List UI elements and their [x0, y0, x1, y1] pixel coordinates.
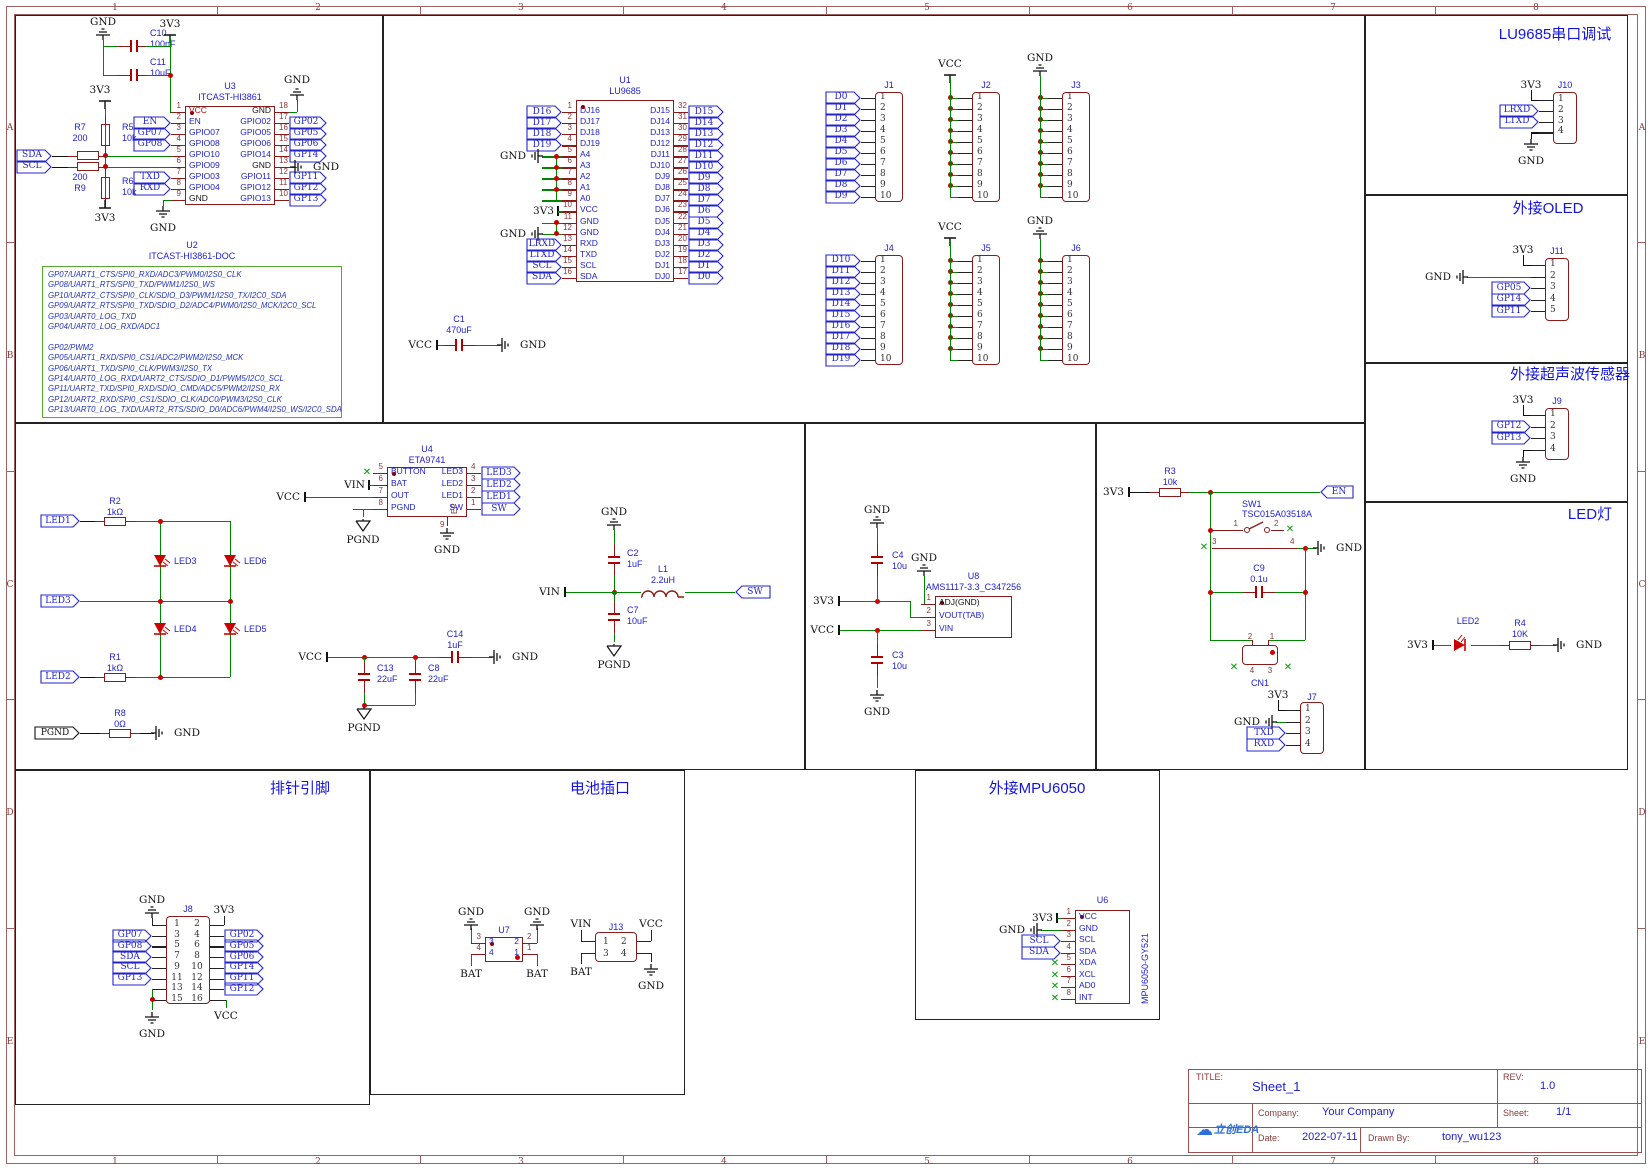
capacitor[interactable] [130, 40, 132, 52]
conn-ref: J2 [981, 80, 991, 90]
part-ref: R5 [122, 122, 134, 132]
pin-number: 1 [1550, 259, 1556, 269]
wire [210, 1000, 224, 1001]
capacitor [457, 651, 459, 663]
pin-name: GND [252, 106, 271, 116]
power-label: 3V3 [1513, 394, 1534, 406]
ic-value: ETA9741 [409, 455, 446, 465]
wire [958, 197, 972, 198]
pin-name: A2 [580, 172, 590, 182]
wire [1531, 415, 1545, 416]
pin-number: 8 [880, 332, 886, 342]
net-label: GP14 [1497, 294, 1522, 304]
component-cn1[interactable] [1242, 645, 1278, 665]
pin-name: DJ12 [650, 139, 670, 149]
section-title-lu9685-debug: LU9685串口调试 [1499, 26, 1612, 43]
wire [471, 954, 472, 966]
pin-name: GPIO07 [189, 128, 220, 138]
wire [958, 120, 972, 121]
doc-line: GP08/UART1_RTS/SPI0_TXD/PWM1/I2S0_WS [48, 281, 215, 289]
wire [861, 109, 875, 110]
pin-number: 3 [977, 114, 983, 124]
pin-number: 2 [1305, 716, 1311, 726]
part-ref: C3 [892, 650, 904, 660]
led[interactable] [222, 620, 238, 640]
pin-number: 3 [174, 930, 180, 940]
wire [1434, 645, 1451, 646]
pin-number: 20 [678, 234, 687, 243]
capacitor[interactable] [871, 656, 883, 658]
wire [95, 677, 104, 678]
easyeda-logo-icon: ☁ [1196, 1120, 1213, 1140]
pin-name: GPIO12 [240, 183, 271, 193]
pin-number: 3 [603, 949, 609, 959]
component-j10[interactable] [1553, 92, 1577, 144]
part-value: 1uF [447, 640, 463, 650]
resistor[interactable] [77, 151, 99, 160]
power-label: 3V3 [1407, 639, 1428, 651]
led[interactable] [152, 552, 168, 572]
resistor[interactable] [101, 177, 110, 199]
wire [537, 954, 538, 966]
pin-name: DJ9 [655, 172, 670, 182]
section-title-mpu6050: 外接MPU6050 [989, 780, 1086, 797]
pin-number: 4 [1558, 126, 1564, 136]
frame-col-label: 5 [924, 3, 930, 13]
pin-name: DJ19 [580, 139, 600, 149]
component-j11[interactable] [1545, 258, 1569, 321]
power-label: VCC [214, 1010, 238, 1022]
capacitor[interactable] [409, 673, 421, 675]
pin-name: DJ3 [655, 239, 670, 249]
capacitor [409, 679, 421, 681]
pin-number: 6 [568, 156, 572, 165]
wire [1048, 338, 1062, 339]
junction-dot [158, 599, 163, 604]
gnd-symbol [489, 647, 503, 667]
net-flag: GP12 [224, 982, 264, 996]
gnd-label: GND [638, 980, 664, 992]
conn-ref: J8 [183, 904, 193, 914]
pin-number: 7 [977, 321, 983, 331]
wire [210, 957, 224, 958]
wire [1276, 722, 1286, 723]
gnd-symbol [867, 690, 887, 704]
conn-ref: J9 [1552, 396, 1562, 406]
part-ref: L1 [658, 564, 668, 574]
wire [950, 360, 958, 361]
bat-label: BAT [526, 968, 548, 980]
wire [210, 946, 224, 947]
wire [1286, 710, 1300, 711]
gnd-label: GND [174, 727, 200, 739]
wire [1531, 277, 1545, 278]
wire [6, 699, 14, 700]
wire [99, 167, 108, 168]
pin-number: 2 [927, 606, 931, 615]
wire [471, 928, 472, 943]
pin-number: 7 [880, 321, 886, 331]
pin-number: 6 [194, 940, 200, 950]
wire [297, 100, 298, 112]
section-title-ultrasonic: 外接超声波传感器 [1510, 366, 1630, 383]
pin-number: 1 [177, 101, 181, 110]
pin-number: 3 [177, 123, 181, 132]
part-value: 10uF [627, 616, 648, 626]
wire [152, 918, 153, 925]
part-ref: R7 [74, 122, 86, 132]
net-flag: D19 [825, 353, 861, 367]
pin-number: 15 [171, 994, 182, 1004]
pin-number: 1 [568, 101, 572, 110]
wire [1638, 699, 1646, 700]
wire [131, 733, 140, 734]
wire [958, 109, 972, 110]
pin-number: 1 [880, 92, 886, 102]
part-value: 0Ω [114, 719, 126, 729]
pin-number: 24 [678, 189, 687, 198]
pin-number: 4 [977, 288, 983, 298]
wire [861, 338, 875, 339]
frame-col-label: 6 [1127, 3, 1133, 13]
wire [459, 657, 471, 658]
pin-number: 23 [678, 200, 687, 209]
wire [420, 1156, 421, 1164]
power-label: VCC [810, 624, 834, 636]
capacitor[interactable] [358, 673, 370, 675]
conn-ref: J6 [1071, 243, 1081, 253]
resistor[interactable] [104, 673, 126, 682]
pin-number: 1 [1550, 409, 1556, 419]
conn-ref: SW1 [1242, 499, 1262, 509]
wire [420, 6, 421, 14]
wire [637, 953, 651, 954]
resistor[interactable] [1159, 488, 1181, 497]
sheet-title: Sheet_1 [1252, 1080, 1300, 1095]
part-value: R9 [74, 183, 86, 193]
pin-number: 13 [563, 234, 572, 243]
pin-name: DJ17 [580, 117, 600, 127]
gnd-label: GND [139, 894, 165, 906]
resistor[interactable] [1509, 641, 1531, 650]
gnd-symbol [142, 1012, 162, 1026]
gnd-label: GND [1336, 542, 1362, 554]
section-box-enable-switch [1096, 423, 1365, 770]
junction-dot [515, 955, 520, 960]
frame-row-label: D [6, 808, 13, 818]
drawn-by-value: tony_wu123 [1442, 1131, 1501, 1144]
wire [958, 360, 972, 361]
net-flag: RXD [1246, 738, 1286, 752]
part-value: 10k [1163, 477, 1178, 487]
power-label: VCC [298, 651, 322, 663]
frame-col-label: 2 [315, 1157, 321, 1167]
wire [861, 120, 875, 121]
wire [1048, 186, 1062, 187]
conn-ref: J5 [981, 243, 991, 253]
wire [1061, 999, 1075, 1000]
no-connect-x-icon: ✕ [1286, 524, 1294, 536]
net-label: D9 [835, 191, 848, 201]
doc-line: GP04/UART0_LOG_RXD/ADC1 [48, 323, 160, 331]
wire [542, 167, 562, 168]
pin-number: 1 [977, 255, 983, 265]
inductor[interactable] [641, 585, 685, 593]
pin-number: 1 [1270, 632, 1274, 641]
pin-number: 8 [379, 498, 383, 507]
gnd-symbol [1521, 139, 1541, 153]
pin-number: 2 [1067, 103, 1073, 113]
pin-number: 5 [977, 136, 983, 146]
pin-name: BAT [391, 479, 407, 489]
pin-number: 3 [1550, 282, 1556, 292]
gnd-symbol [1030, 62, 1050, 76]
pin-number: 14 [191, 983, 202, 993]
pin-number: 1 [1234, 519, 1238, 528]
wire [861, 142, 875, 143]
pin-name: EN [189, 117, 201, 127]
pin-number: 3 [1212, 537, 1216, 546]
frame-col-label: 1 [112, 3, 118, 13]
frame-col-label: 2 [315, 3, 321, 13]
pin-number: 5 [379, 462, 383, 471]
led-label: LED5 [244, 624, 267, 634]
pin-number: 15 [279, 134, 288, 143]
net-flag: LTXD [1499, 115, 1539, 129]
junction-dot [554, 165, 559, 170]
ic-value: LU9685 [609, 86, 641, 96]
pin-number: 1 [1305, 704, 1311, 714]
pin-number: 13 [279, 156, 288, 165]
component-j13[interactable] [595, 932, 637, 962]
pin-name: SDA [580, 272, 597, 282]
capacitor [358, 679, 370, 681]
wire [1286, 733, 1300, 734]
net-label: LED1 [486, 492, 512, 502]
wire [118, 75, 130, 76]
wire [1523, 450, 1524, 457]
wire [958, 316, 972, 317]
wire [542, 178, 562, 179]
net-label: GP12 [230, 984, 255, 994]
wire [1539, 111, 1553, 112]
net-label: GP13 [118, 973, 143, 983]
wire [1531, 427, 1545, 428]
capacitor [461, 339, 463, 351]
wire [210, 925, 224, 926]
wire [1029, 6, 1030, 14]
pin-number: 27 [678, 156, 687, 165]
net-flag: SCL [16, 160, 52, 174]
wire [6, 928, 14, 929]
net-flag: EN [1320, 485, 1354, 499]
wire [463, 345, 475, 346]
net-label: RXD [1254, 739, 1274, 749]
gnd-label: GND [1518, 155, 1544, 167]
net-label: SDA [1029, 947, 1049, 957]
wire [542, 156, 562, 157]
junction-dot [150, 997, 155, 1002]
pin-name: GND [580, 217, 599, 227]
pin-number: 4 [477, 943, 481, 952]
wire [353, 497, 373, 498]
wire [1048, 197, 1062, 198]
wire [1029, 1156, 1030, 1164]
pin-number: 3 [471, 474, 475, 483]
power-label: VCC [938, 221, 962, 233]
pin-number: 1 [174, 919, 180, 929]
net-label: PGND [41, 728, 69, 738]
pin-number: 2 [621, 937, 627, 947]
net-label: LED3 [45, 596, 71, 606]
part-value: 200 [72, 133, 87, 143]
resistor[interactable] [104, 517, 126, 526]
pin-number: 3 [927, 619, 931, 628]
wire [1232, 1156, 1233, 1164]
net-label: GP13 [1497, 433, 1522, 443]
led[interactable] [1451, 637, 1471, 653]
resistor[interactable] [109, 729, 131, 738]
conn-ref: CN1 [1251, 678, 1269, 688]
capacitor[interactable] [608, 556, 620, 558]
pgnd-symbol [355, 519, 371, 532]
pin-name: DJ13 [650, 128, 670, 138]
wire [1471, 645, 1500, 646]
pin-name: GPIO04 [189, 183, 220, 193]
wire [170, 46, 171, 112]
part-ref: C2 [627, 548, 639, 558]
pin-number: 4 [1305, 739, 1311, 749]
pin-number: 4 [194, 930, 200, 940]
capacitor[interactable] [871, 556, 883, 558]
led[interactable] [152, 620, 168, 640]
part-ref: R8 [114, 708, 126, 718]
wire [1531, 645, 1540, 646]
wire [651, 930, 652, 941]
wire [1278, 700, 1279, 710]
ic-ref: U4 [421, 444, 433, 454]
pin-number: 6 [1067, 965, 1071, 974]
pin-name: GND [580, 228, 599, 238]
wire [1210, 492, 1211, 640]
gnd-label: GND [512, 651, 538, 663]
frame-col-label: 6 [1127, 1157, 1133, 1167]
pin-name: LED1 [442, 491, 463, 501]
pin-number: 5 [1550, 305, 1556, 315]
pin-number: 5 [1067, 299, 1073, 309]
frame-col-label: 1 [112, 1157, 118, 1167]
capacitor[interactable] [451, 651, 453, 663]
wire [1531, 450, 1545, 451]
frame-row-label: E [7, 1037, 14, 1047]
pin-name: VIN [939, 624, 953, 634]
wire [826, 1156, 827, 1164]
gnd-label: GND [1576, 639, 1602, 651]
pin-name: SCL [1079, 935, 1096, 945]
capacitor [871, 562, 883, 564]
wire [6, 242, 14, 243]
part-ref: R6 [122, 176, 134, 186]
wire [1523, 405, 1524, 415]
resistor[interactable] [101, 124, 110, 146]
frame-row-label: A [1639, 123, 1646, 133]
gnd-symbol [93, 26, 113, 40]
net-label: SCL [22, 161, 41, 171]
capacitor[interactable] [455, 339, 457, 351]
pin-name: XCL [1079, 970, 1096, 980]
component-j9[interactable] [1545, 408, 1569, 460]
gnd-symbol [497, 335, 511, 355]
pin-number: 16 [563, 267, 572, 276]
pin-name: LED3 [442, 467, 463, 477]
pin-number: 4 [471, 462, 475, 471]
wire [542, 189, 562, 190]
pin-number: 2 [1550, 271, 1556, 281]
net-flag: LED1 [40, 514, 80, 528]
wire [581, 953, 582, 964]
resistor[interactable] [77, 162, 99, 171]
net-label: LED1 [45, 516, 71, 526]
pin-number: 6 [177, 156, 181, 165]
pin-number: 9 [177, 189, 181, 198]
wire [1531, 288, 1545, 289]
section-title-battery: 电池插口 [570, 780, 630, 797]
pin-number: 10 [563, 200, 572, 209]
pin-number: 2 [194, 919, 200, 929]
gnd-symbol [437, 528, 457, 542]
pin-number: 2 [1274, 519, 1278, 528]
pin-number: 3 [977, 277, 983, 287]
pin-number: 29 [678, 134, 687, 143]
pin-number: 2 [880, 103, 886, 113]
part-ref: C4 [892, 550, 904, 560]
net-label: LTXD [1505, 116, 1530, 126]
wire [921, 630, 935, 631]
capacitor[interactable] [608, 613, 620, 615]
pin-number: 8 [1067, 169, 1073, 179]
power-label: VCC [408, 339, 432, 351]
led[interactable] [222, 552, 238, 572]
part-ref: 200 [72, 172, 87, 182]
wire [958, 294, 972, 295]
component-sw1[interactable] [1243, 522, 1271, 536]
conn-ref: J4 [884, 243, 894, 253]
pin-name: GPIO09 [189, 161, 220, 171]
wire [958, 131, 972, 132]
component-j7[interactable] [1300, 702, 1324, 754]
junction-dot [168, 73, 173, 78]
wire [1048, 131, 1062, 132]
part-value: 1kΩ [107, 507, 123, 517]
wire [950, 78, 951, 197]
wire [958, 338, 972, 339]
pin-name: VCC [1079, 912, 1097, 922]
wire [443, 345, 455, 346]
capacitor[interactable] [130, 69, 132, 81]
pin-number: 18 [279, 101, 288, 110]
pgnd-symbol [606, 644, 622, 657]
gnd-label: GND [458, 906, 484, 918]
wire [910, 617, 921, 618]
gnd-symbol [1553, 635, 1567, 655]
capacitor[interactable] [1255, 586, 1257, 598]
pin-number: 1 [1558, 94, 1564, 104]
pin-number: 2 [1248, 632, 1252, 641]
wire [1523, 265, 1531, 266]
wire [958, 349, 972, 350]
pin-number: 14 [279, 145, 288, 154]
frame-col-label: 4 [721, 1157, 727, 1167]
